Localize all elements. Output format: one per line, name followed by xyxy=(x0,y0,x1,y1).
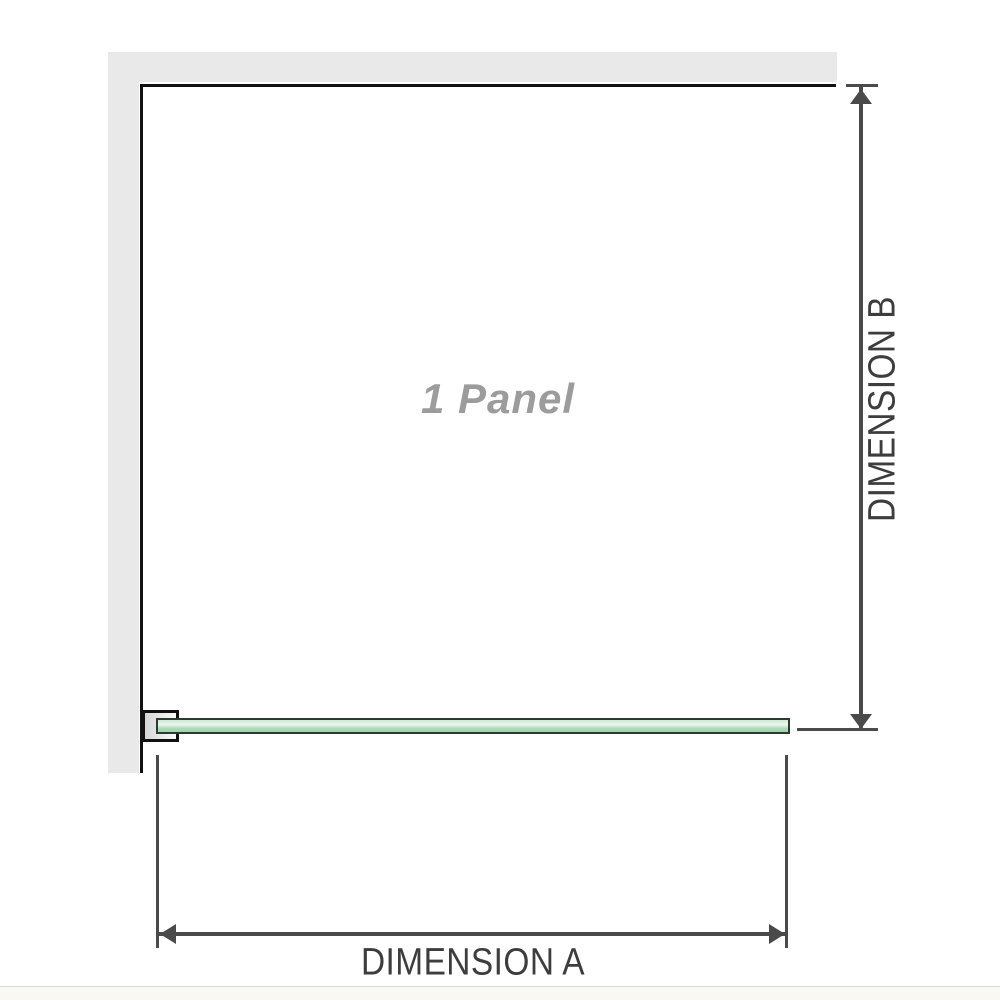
arrow-up-icon xyxy=(850,89,872,104)
panel-dimension-diagram: 1 Panel DIMENSION B DIMENSION A xyxy=(0,0,1000,1000)
arrow-right-icon xyxy=(769,924,785,944)
panel-area-top-edge xyxy=(142,84,836,87)
panel-count-label: 1 Panel xyxy=(421,375,575,423)
dimension-a-left-extension-line xyxy=(156,755,159,948)
arrow-left-icon xyxy=(160,924,176,944)
dimension-b-label: DIMENSION B xyxy=(862,296,905,522)
dimension-a-label: DIMENSION A xyxy=(361,942,585,985)
glass-panel xyxy=(156,718,790,734)
wall-inner-edge xyxy=(140,84,143,773)
image-bottom-strip xyxy=(0,987,1000,1000)
dimension-a-line xyxy=(159,932,786,936)
wall-left xyxy=(108,52,139,773)
dimension-a-right-extension-line xyxy=(785,755,788,948)
arrow-down-icon xyxy=(850,714,872,729)
wall-top xyxy=(108,52,837,82)
